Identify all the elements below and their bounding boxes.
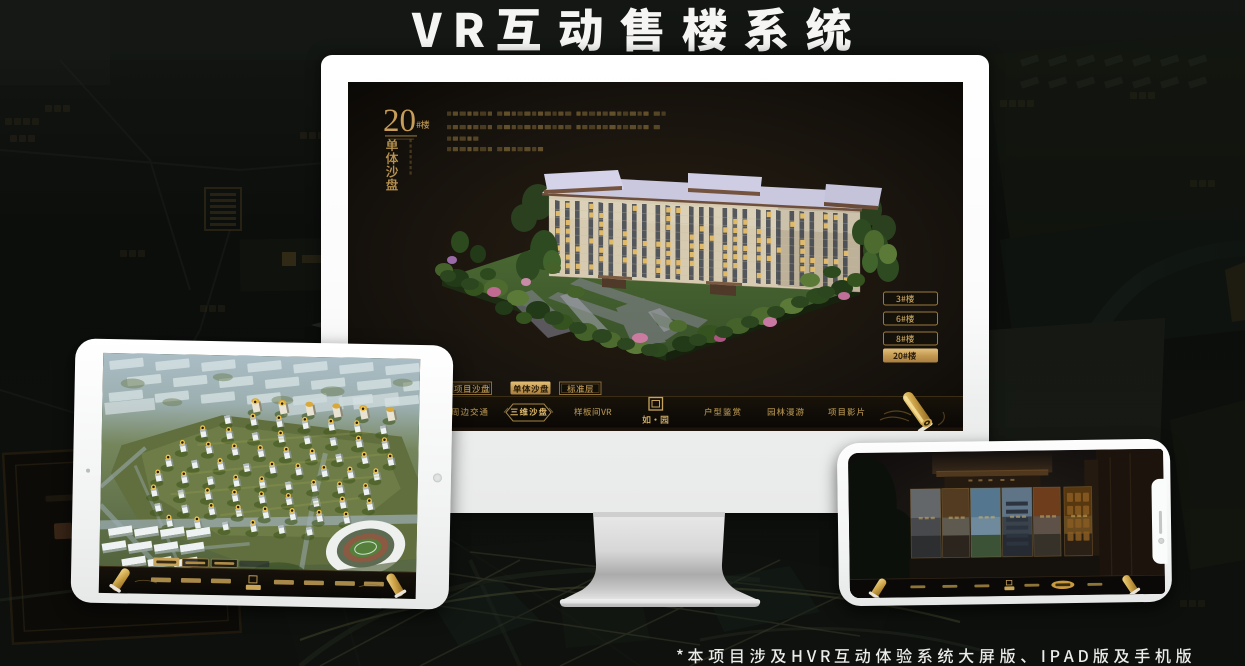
svg-text:20: 20 xyxy=(383,103,416,139)
